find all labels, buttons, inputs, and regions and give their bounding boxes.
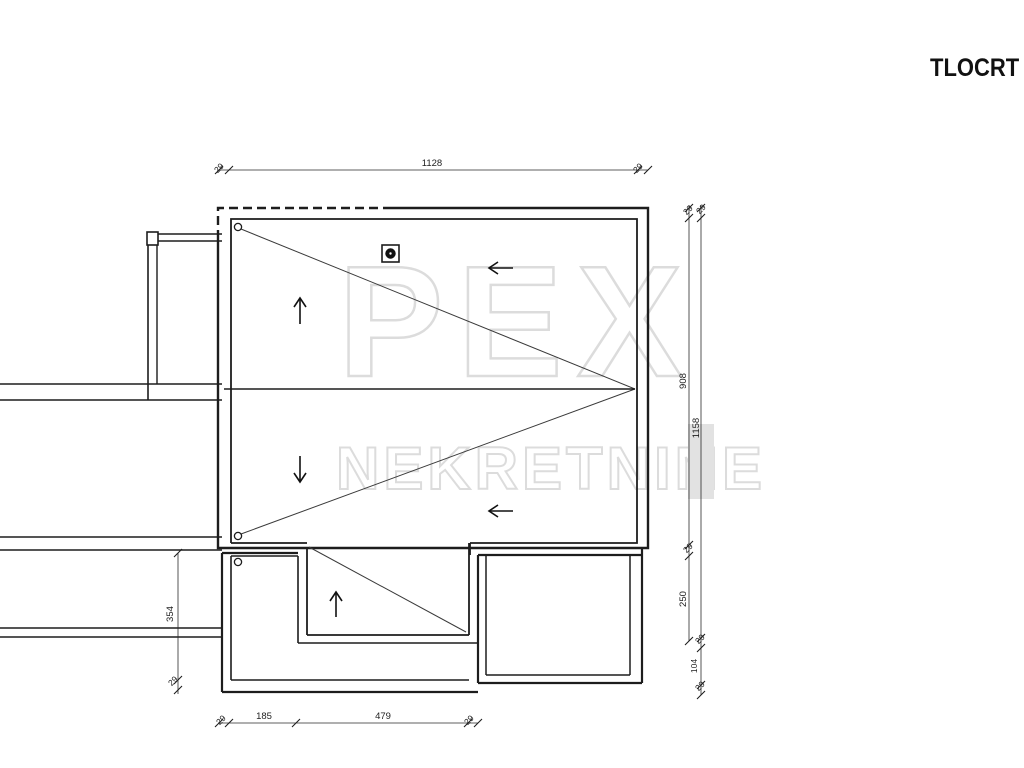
drawing-title: TLOCRT K	[930, 54, 1024, 83]
left-wing-walls	[0, 232, 222, 637]
dim-label: 250	[678, 591, 689, 607]
corner-marker-icon	[234, 223, 241, 230]
arrow-up-icon	[330, 592, 342, 617]
dim-label: 1158	[691, 418, 702, 438]
arrow-up-icon	[294, 298, 306, 324]
floor-plan-canvas: PEX NEKRETNINE	[0, 0, 1024, 768]
chimney-symbol	[382, 245, 399, 262]
dim-label: 29	[462, 713, 476, 727]
drawing-sheet: PEX NEKRETNINE	[0, 0, 1024, 768]
dim-label: 29	[212, 161, 226, 175]
hip-line-extension	[309, 547, 466, 632]
dim-label: 185	[256, 711, 272, 722]
corner-marker-icon	[234, 532, 241, 539]
dim-label: 29	[214, 713, 228, 727]
terrace-outline	[478, 548, 642, 683]
dim-label: 354	[165, 606, 176, 622]
corner-marker-icon	[234, 558, 241, 565]
watermark: PEX NEKRETNINE	[336, 234, 766, 502]
dim-label: 104	[689, 659, 699, 673]
arrow-down-icon	[294, 456, 306, 482]
arrow-left-icon	[489, 505, 513, 517]
dim-label: 479	[375, 711, 391, 722]
dim-label: 908	[678, 373, 689, 389]
column-marker	[147, 232, 158, 245]
dim-label: 29	[631, 161, 645, 175]
dim-label: 29	[694, 202, 708, 216]
corner-markers	[234, 223, 241, 565]
dim-label: 1128	[422, 158, 442, 169]
